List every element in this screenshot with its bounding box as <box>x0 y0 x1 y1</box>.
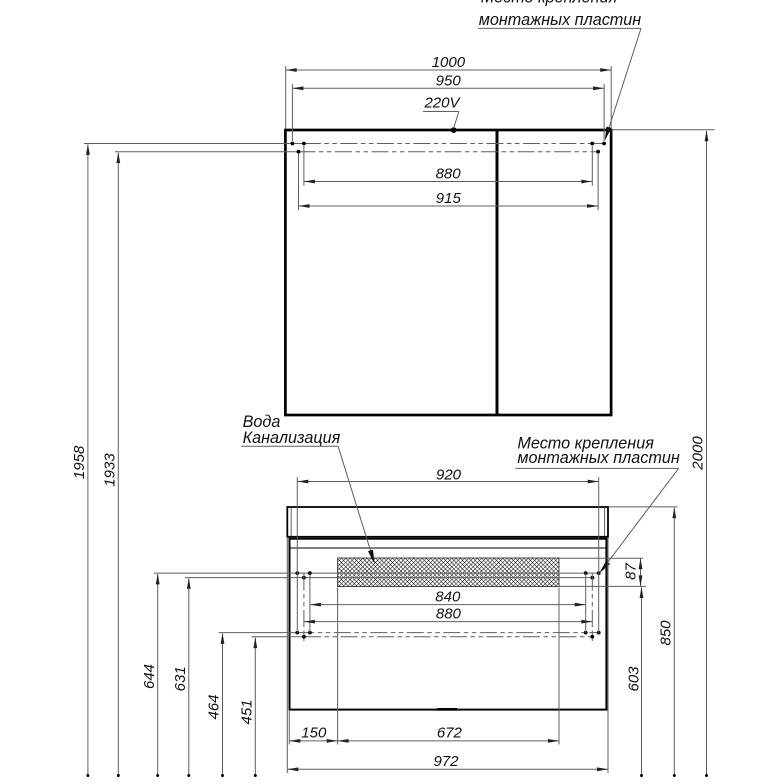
svg-text:2000: 2000 <box>690 436 707 471</box>
svg-text:880: 880 <box>436 165 462 182</box>
svg-text:603: 603 <box>626 666 643 692</box>
svg-text:950: 950 <box>436 72 462 89</box>
svg-text:220V: 220V <box>423 95 461 112</box>
svg-text:1000: 1000 <box>432 54 466 71</box>
svg-text:850: 850 <box>657 620 674 646</box>
svg-text:451: 451 <box>238 699 255 724</box>
svg-text:840: 840 <box>435 588 461 605</box>
svg-text:150: 150 <box>301 725 327 742</box>
svg-text:Место крепления: Место крепления <box>481 0 618 6</box>
svg-text:915: 915 <box>436 190 462 207</box>
svg-text:644: 644 <box>141 664 158 689</box>
svg-text:Канализация: Канализация <box>243 429 341 447</box>
svg-text:672: 672 <box>437 725 463 742</box>
svg-text:972: 972 <box>433 753 459 770</box>
svg-text:1933: 1933 <box>101 453 118 487</box>
svg-text:880: 880 <box>436 605 462 622</box>
svg-text:монтажных пластин: монтажных пластин <box>479 11 641 29</box>
svg-text:464: 464 <box>206 694 223 719</box>
svg-text:87: 87 <box>622 563 639 580</box>
svg-text:631: 631 <box>172 666 189 691</box>
svg-text:Вода: Вода <box>243 413 281 431</box>
svg-text:монтажных пластин: монтажных пластин <box>517 449 679 467</box>
svg-text:1958: 1958 <box>71 445 88 479</box>
svg-text:920: 920 <box>436 466 462 483</box>
